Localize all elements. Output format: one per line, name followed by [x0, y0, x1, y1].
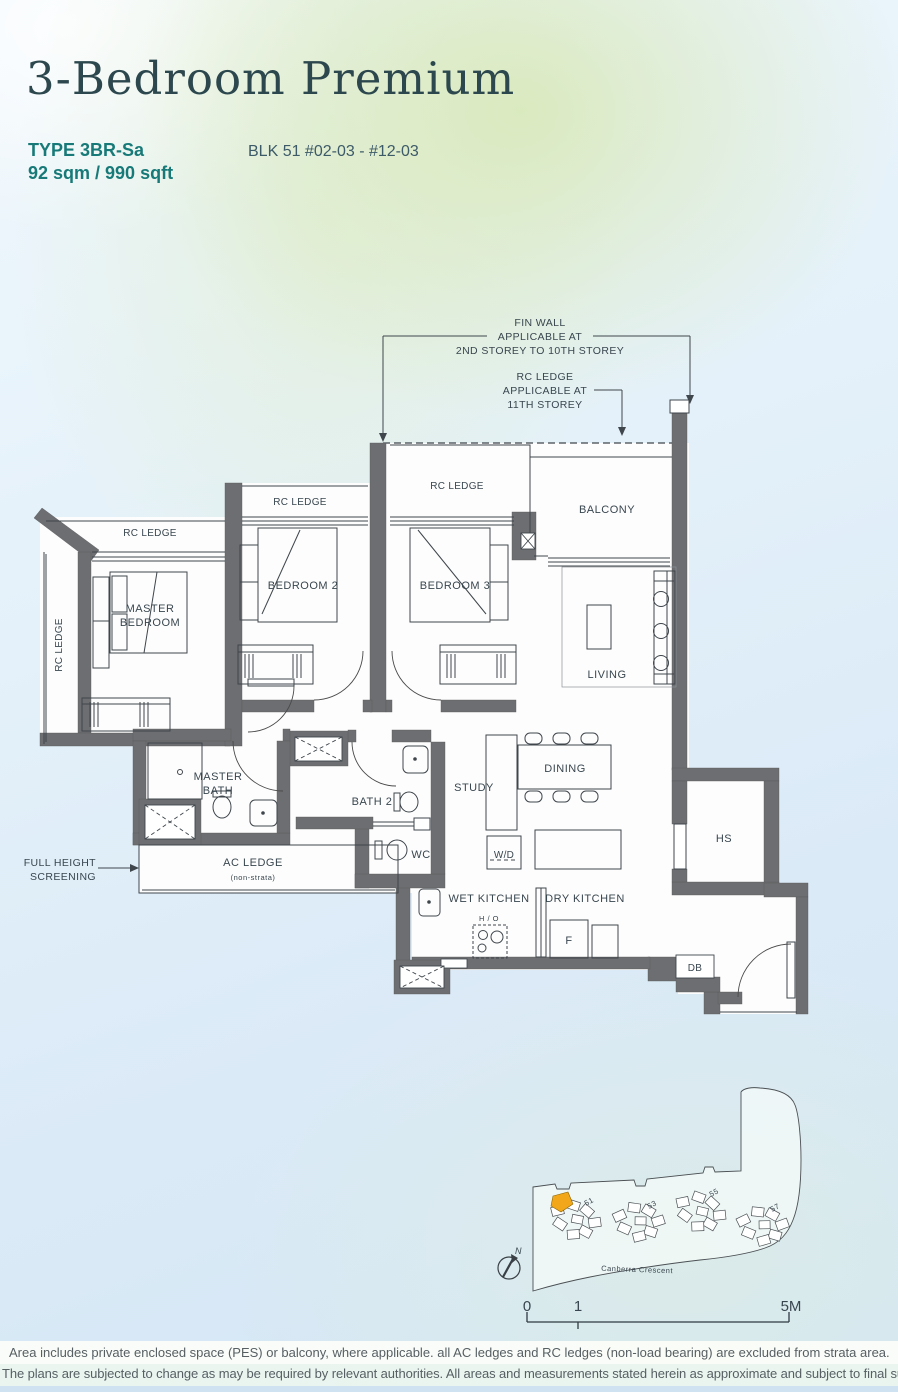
scale-5m: 5M	[781, 1298, 802, 1315]
scale-1: 1	[574, 1298, 582, 1315]
bedroom2-label: BEDROOM 2	[268, 580, 339, 592]
wet-kitchen-label: WET KITCHEN	[448, 893, 529, 905]
ac-ledge-sub-label: (non-strata)	[231, 873, 276, 882]
north-arrow-icon: N	[498, 1246, 522, 1279]
footer-band-3	[0, 1386, 898, 1392]
study-label: STUDY	[454, 782, 494, 794]
svg-text:SCREENING: SCREENING	[30, 871, 96, 883]
svg-text:RC LEDGE: RC LEDGE	[517, 371, 574, 383]
street-label: Canberra Crescent	[601, 1264, 674, 1276]
dining-label: DINING	[544, 763, 586, 775]
master-bath-label: MASTER	[194, 771, 243, 783]
full-height-screening-annotation: FULL HEIGHT SCREENING	[24, 857, 139, 883]
svg-text:APPLICABLE AT: APPLICABLE AT	[503, 385, 588, 397]
scale-bar: 0 1 5M	[523, 1298, 802, 1329]
svg-text:BEDROOM: BEDROOM	[120, 617, 180, 629]
svg-text:FULL HEIGHT: FULL HEIGHT	[24, 857, 96, 869]
svg-text:11TH STOREY: 11TH STOREY	[507, 399, 582, 411]
svg-text:FIN WALL: FIN WALL	[514, 317, 565, 329]
bedroom3-label: BEDROOM 3	[420, 580, 491, 592]
rc-ledge-label-left: RC LEDGE	[54, 618, 65, 672]
balcony-label: BALCONY	[579, 504, 635, 516]
site-plan: 51 53 55 57 Canberra Crescent N 0 1 5M	[498, 1088, 801, 1329]
svg-text:APPLICABLE AT: APPLICABLE AT	[498, 331, 583, 343]
dry-kitchen-label: DRY KITCHEN	[545, 893, 625, 905]
master-bedroom-label: MASTER	[126, 603, 175, 615]
ac-ledge-label: AC LEDGE	[223, 857, 283, 869]
fridge-label: F	[565, 935, 572, 947]
rc-ledge-label-b2: RC LEDGE	[273, 497, 327, 508]
rc-ledge-label-b3: RC LEDGE	[430, 481, 484, 492]
hs-label: HS	[716, 833, 732, 845]
disclaimer-line-2: The plans are subjected to change as may…	[2, 1366, 898, 1381]
rc-ledge-annotation: RC LEDGE APPLICABLE AT 11TH STOREY	[503, 371, 626, 436]
floor-plan-svg: FIN WALL APPLICABLE AT 2ND STOREY TO 10T…	[0, 0, 898, 1392]
site-boundary	[533, 1088, 801, 1291]
svg-text:BATH: BATH	[203, 785, 234, 797]
svg-text:N: N	[515, 1246, 522, 1256]
brochure-page: 3-Bedroom Premium TYPE 3BR-Sa 92 sqm / 9…	[0, 0, 898, 1392]
hob-label: H / O	[479, 914, 499, 923]
svg-text:2ND STOREY TO 10TH STOREY: 2ND STOREY TO 10TH STOREY	[456, 345, 624, 357]
rc-ledge-label-master: RC LEDGE	[123, 528, 177, 539]
db-label: DB	[688, 963, 703, 974]
disclaimer-line-1: Area includes private enclosed space (PE…	[9, 1345, 890, 1360]
wc-label: WC	[411, 849, 430, 861]
bath2-label: BATH 2	[352, 796, 393, 808]
floor-plan: FIN WALL APPLICABLE AT 2ND STOREY TO 10T…	[24, 317, 808, 1014]
wd-label: W/D	[494, 850, 514, 861]
living-label: LIVING	[587, 669, 626, 681]
